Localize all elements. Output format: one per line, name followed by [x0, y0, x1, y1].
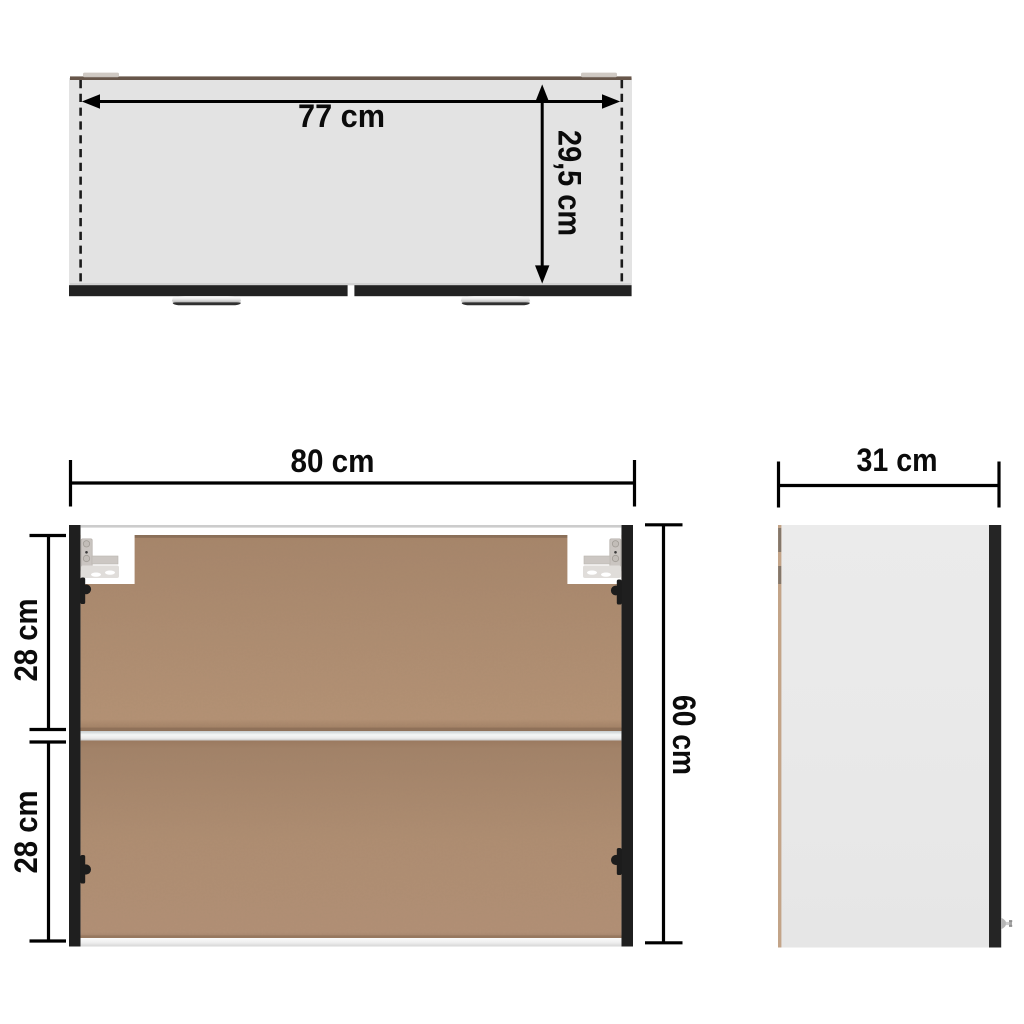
svg-text:60 cm: 60 cm	[666, 695, 702, 775]
svg-text:31 cm: 31 cm	[857, 442, 938, 478]
svg-text:77 cm: 77 cm	[298, 98, 385, 134]
svg-text:28 cm: 28 cm	[8, 599, 44, 682]
svg-text:80 cm: 80 cm	[291, 443, 375, 479]
svg-text:29,5 cm: 29,5 cm	[552, 130, 588, 236]
svg-text:28 cm: 28 cm	[8, 791, 44, 874]
